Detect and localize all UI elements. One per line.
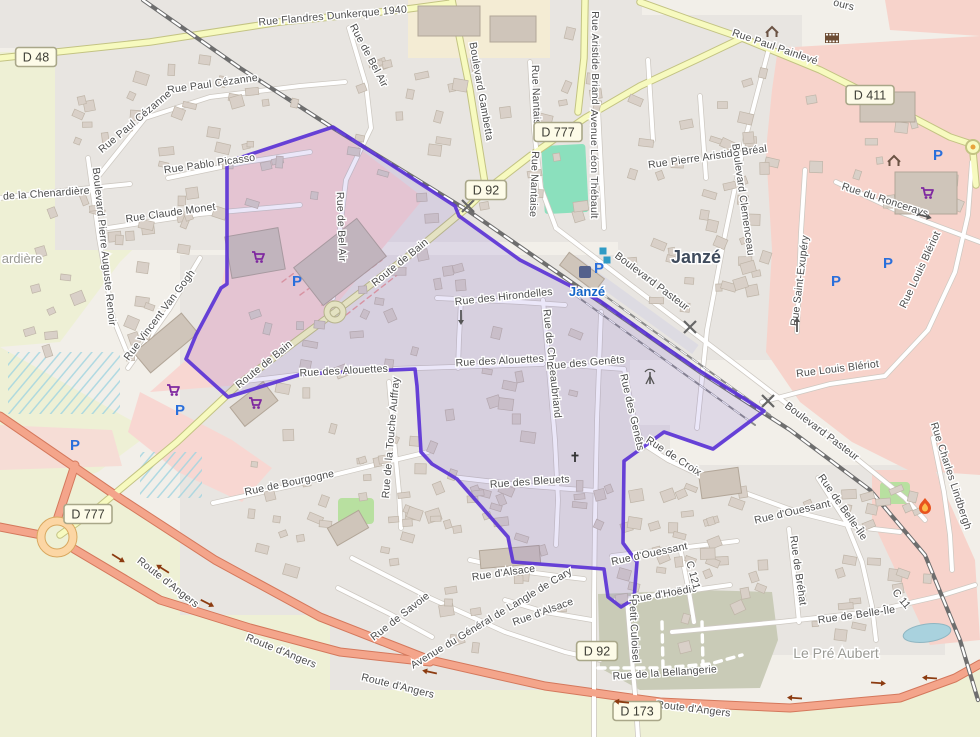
svg-text:P: P xyxy=(175,402,185,419)
cinema-icon xyxy=(825,33,839,43)
street-label: Rue Nantaise xyxy=(529,65,543,131)
svg-text:D 777: D 777 xyxy=(541,126,574,140)
svg-text:D 777: D 777 xyxy=(71,508,104,522)
svg-text:D 173: D 173 xyxy=(620,705,653,719)
svg-text:P: P xyxy=(883,255,893,272)
svg-text:D 48: D 48 xyxy=(23,51,49,65)
road-shield: D 92 xyxy=(466,181,507,200)
parking-icon: P xyxy=(883,255,893,272)
place-label: Janzé xyxy=(569,284,605,299)
place-label: ardière xyxy=(2,251,42,266)
bus-stop-icon xyxy=(604,257,611,264)
svg-text:P: P xyxy=(831,273,841,290)
svg-text:P: P xyxy=(933,147,943,164)
parking-icon: P xyxy=(292,273,302,290)
parking-icon: P xyxy=(594,260,604,277)
map-viewport[interactable]: PPPPPPPRue Flandres Dunkerque 1940Rue Pa… xyxy=(0,0,980,737)
road-shield: D 92 xyxy=(577,642,618,661)
map-canvas[interactable]: PPPPPPPRue Flandres Dunkerque 1940Rue Pa… xyxy=(0,0,980,737)
parking-icon: P xyxy=(70,437,80,454)
place-label: Le Pré Aubert xyxy=(793,645,879,661)
svg-text:D 92: D 92 xyxy=(473,184,499,198)
parking-icon: P xyxy=(933,147,943,164)
svg-text:D 411: D 411 xyxy=(854,89,886,103)
street-label: Rue Aristide Briand xyxy=(589,11,601,105)
svg-text:P: P xyxy=(594,260,604,277)
road-shield: D 411 xyxy=(846,86,894,105)
parking-icon: P xyxy=(175,402,185,419)
svg-text:D 92: D 92 xyxy=(584,645,610,659)
place-label: Janzé xyxy=(671,247,721,267)
svg-text:P: P xyxy=(70,437,80,454)
street-label: Rue Nantaise xyxy=(527,151,541,217)
road-shield: D 48 xyxy=(16,48,57,67)
station-icon xyxy=(579,266,591,278)
bus-stop-icon xyxy=(600,248,607,255)
road-shield: D 777 xyxy=(534,123,582,142)
parking-icon: P xyxy=(831,273,841,290)
street-label: Rue de Bel Air xyxy=(334,192,348,263)
road-shield: D 777 xyxy=(64,505,112,524)
svg-text:P: P xyxy=(292,273,302,290)
road-shield: D 173 xyxy=(613,702,661,721)
street-label: Avenue Léon Thébault xyxy=(588,109,600,218)
